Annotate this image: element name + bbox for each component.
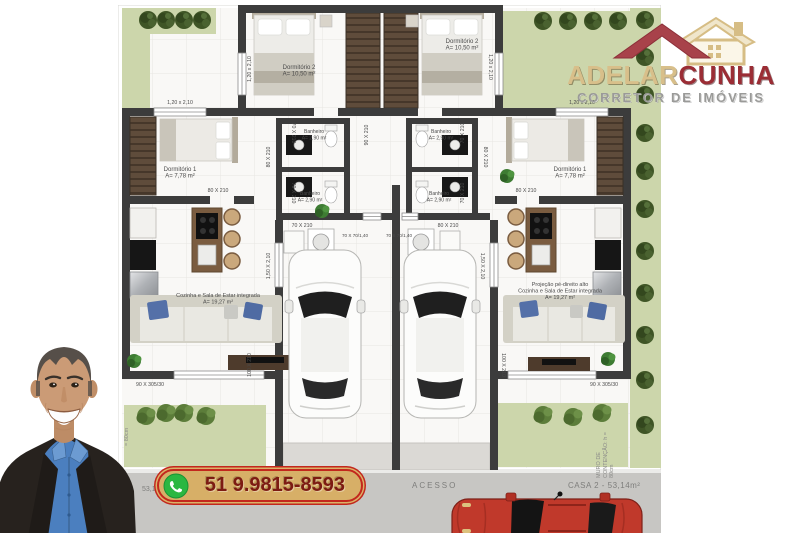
wardrobe [130, 117, 156, 195]
dimension-label: 100 X 210 [500, 353, 506, 377]
dimension-label: 1,50 X 2,10 [266, 253, 272, 280]
dimension-label: 70 X 210 [290, 183, 296, 204]
dimension-label: 80 X 210 [516, 188, 537, 194]
dimension-label: 1,20 x 2,10 [167, 100, 193, 106]
casa2-area-label: CASA 2 - 53,14m² [568, 481, 640, 490]
dimension-label: 80 X 210 [482, 147, 488, 168]
access-label: ACESSO [412, 481, 457, 490]
driveway [283, 443, 490, 470]
dimension-label: 80 X 210 [438, 223, 459, 229]
dimension-label: 70 X 210 [292, 223, 313, 229]
room-label: Dormitório 1A= 7,78 m² [164, 167, 197, 179]
room-label: BanheiroA= 2,90 m² [429, 129, 454, 141]
brand-logo: ADELARCUNHA CORRETOR DE IMÓVEIS [558, 10, 784, 110]
phone-number: 51 9.9815-8593 [189, 474, 361, 497]
red-car-top-view [450, 491, 646, 533]
room-label: Dormitório 2A= 10,50 m² [446, 39, 479, 51]
brand-last-name: CUNHA [678, 60, 774, 90]
brand-name: ADELARCUNHA [558, 60, 784, 91]
dimension-label: 90 X 305/30 [590, 382, 618, 388]
dimension-label: 1,20 x 2,10 [487, 54, 493, 80]
whatsapp-icon [163, 473, 189, 499]
brand-first-name: ADELAR [567, 60, 678, 90]
dimension-label: 70 X 210 [290, 123, 296, 144]
white-car-top-view [285, 250, 365, 418]
dimension-label: 80 X 210 [266, 147, 272, 168]
wardrobe [597, 117, 623, 195]
dimension-label: 1,50 X 2,10 [479, 253, 485, 280]
dimension-label: 90 X 210 [364, 125, 370, 146]
agent-photo [0, 333, 138, 533]
casa1-area-label-partial: 53,1 [142, 486, 156, 493]
single-bed [160, 117, 238, 163]
room-label: BanheiroA= 2,90 m² [427, 191, 452, 203]
dimension-label: 70 X 210 [460, 123, 466, 144]
white-car-top-view [400, 250, 480, 418]
sofa [503, 295, 625, 343]
dimension-label: 80 X 210 [208, 188, 229, 194]
room-label: BanheiroA= 2,90 m² [302, 129, 327, 141]
dimension-label: 1,20 x 2,10 [247, 56, 253, 82]
room-label: Dormitório 1A= 7,78 m² [554, 167, 587, 179]
agent-portrait [0, 333, 138, 533]
dimension-label: 70 X 210 [460, 183, 466, 204]
dimension-label: 90 X 305/30 [136, 382, 164, 388]
dimension-label: 70 X 70/1,40 [342, 233, 368, 238]
brand-subtitle: CORRETOR DE IMÓVEIS [558, 90, 784, 105]
whatsapp-phone-pill[interactable]: 51 9.9815-8593 [157, 469, 363, 502]
single-bed [506, 117, 584, 163]
dimension-label: 100 X 210 [247, 353, 253, 377]
room-label: BanheiroA= 2,90 m² [298, 191, 323, 203]
room-label: Dormitório 2A= 10,50 m² [283, 65, 316, 77]
dimension-label: 70 X 70/1,40 [386, 233, 412, 238]
flyer-page: 1,20 x 2,101,20 x 2,101,20 x 2,101,20 x … [0, 0, 800, 533]
retaining-wall-note-right: MURO DE CONTENÇÃO: h = 80cm [596, 406, 616, 478]
